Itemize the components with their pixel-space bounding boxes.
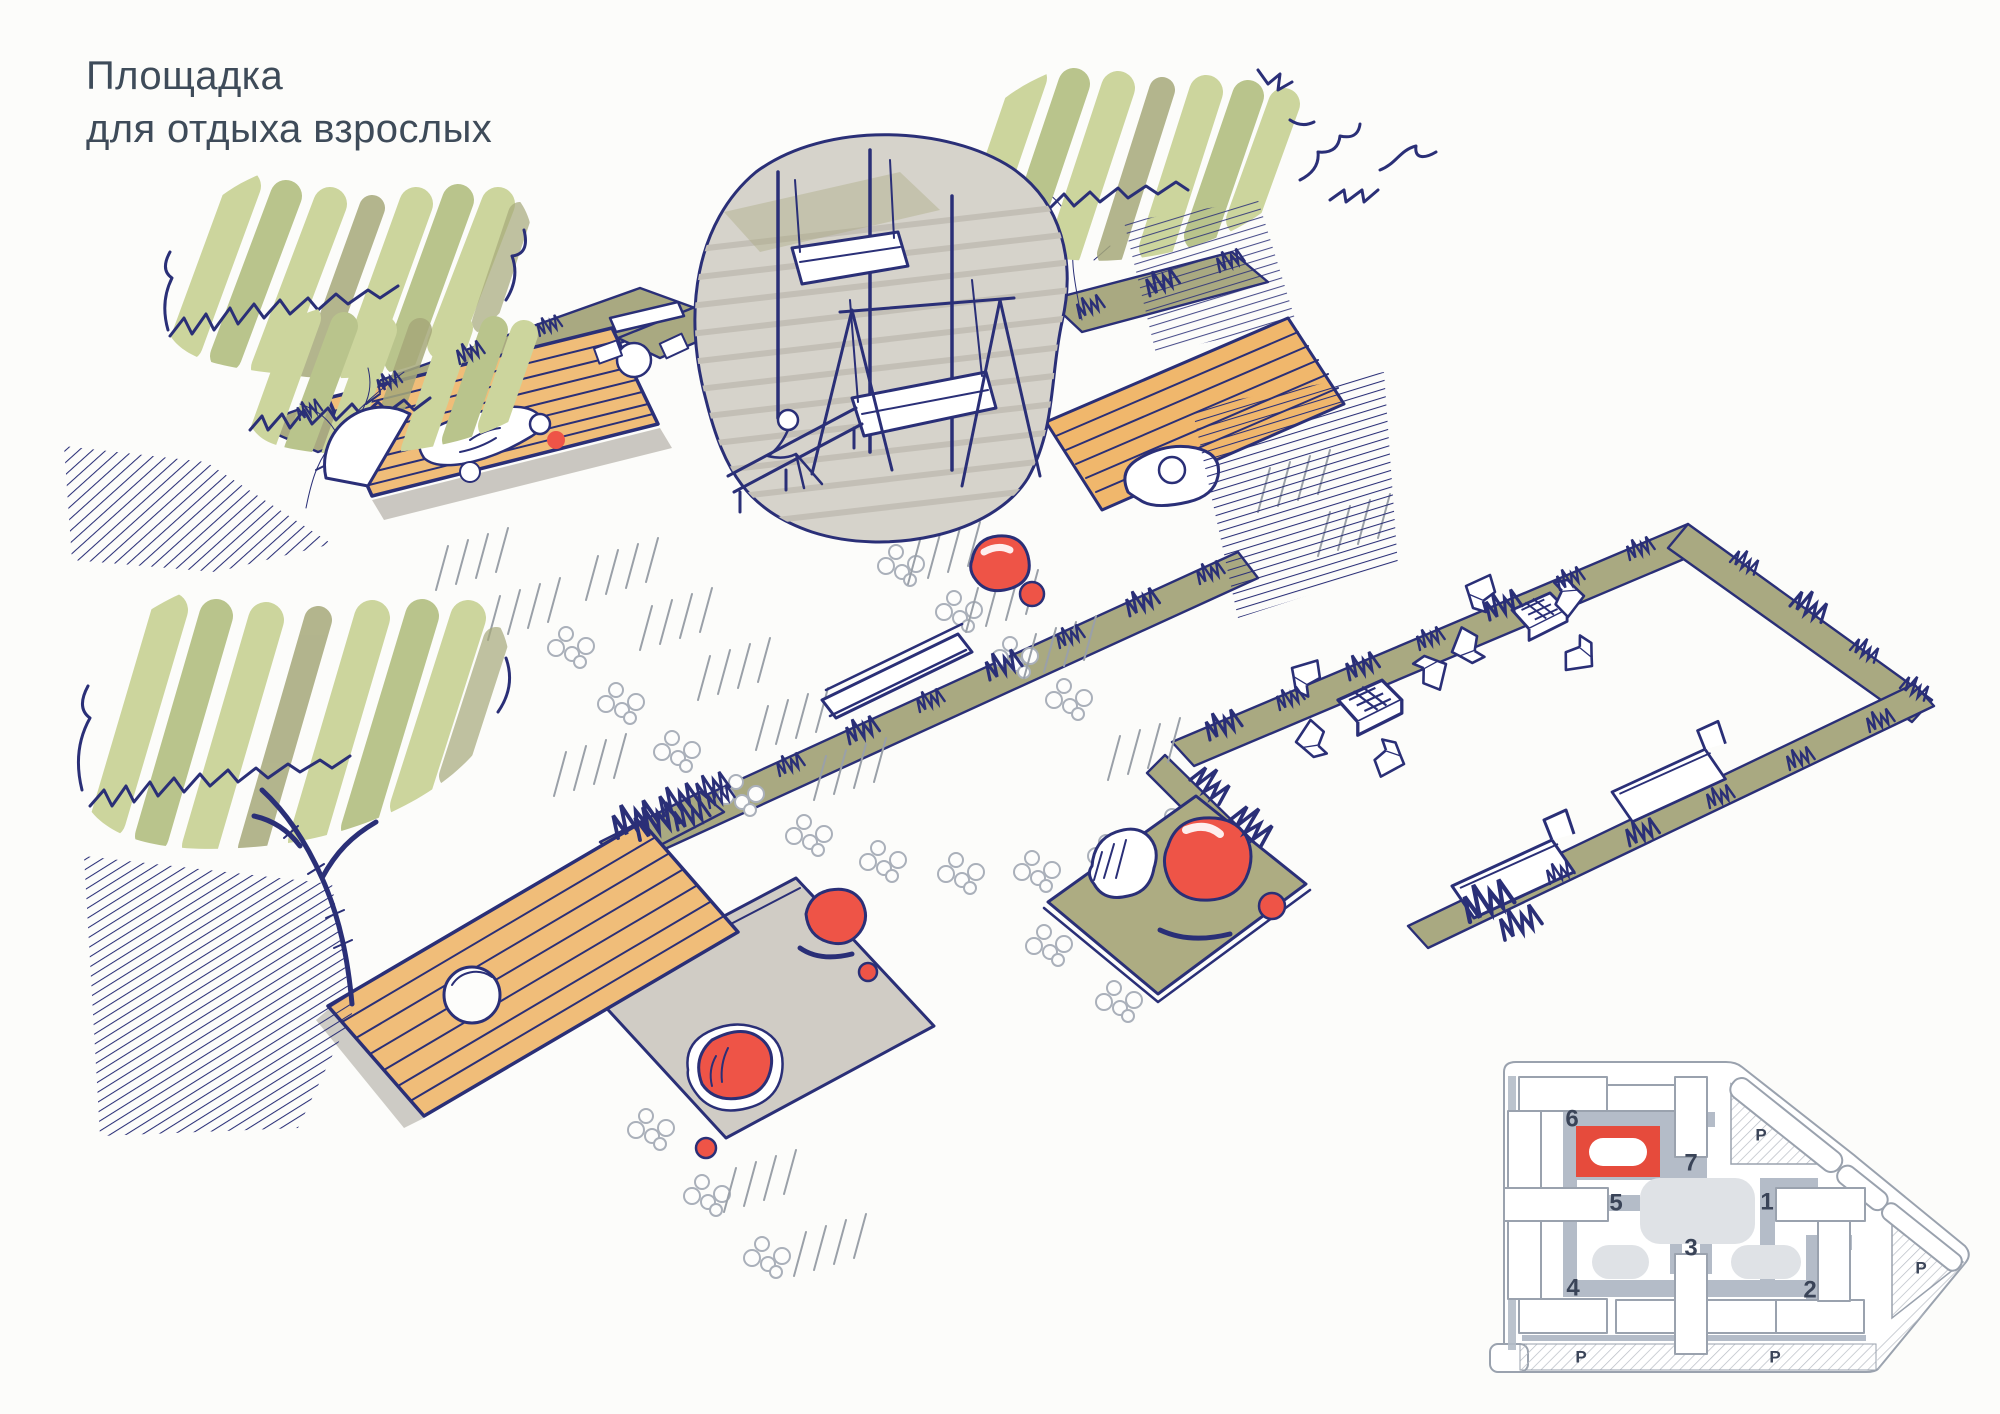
title-line-2: для отдыха взрослых — [86, 103, 492, 156]
parking-label-bottom-right: P — [1769, 1348, 1780, 1367]
title-line-1: Площадка — [86, 50, 492, 103]
red-rocks-center — [971, 536, 1044, 606]
sketch-canvas: Площадка для отдыха взрослых — [0, 0, 2000, 1414]
site-marker-7: 7 — [1684, 1150, 1697, 1177]
swing-pavilion — [690, 135, 1080, 542]
parking-label-bottom-left: P — [1575, 1348, 1586, 1367]
current-site-highlight — [1576, 1126, 1660, 1177]
site-plan-minimap: 1 2 3 4 5 6 7 P P P P — [1488, 1056, 1988, 1411]
site-marker-6: 6 — [1565, 1106, 1578, 1133]
site-marker-5: 5 — [1609, 1190, 1622, 1217]
site-marker-3: 3 — [1684, 1235, 1697, 1262]
drawing-title: Площадка для отдыха взрослых — [86, 50, 492, 156]
site-marker-4: 4 — [1566, 1275, 1580, 1302]
site-marker-1: 1 — [1760, 1189, 1773, 1216]
site-marker-2: 2 — [1803, 1277, 1816, 1304]
parking-label-right: P — [1915, 1259, 1926, 1278]
parking-label-top-right: P — [1755, 1126, 1766, 1145]
